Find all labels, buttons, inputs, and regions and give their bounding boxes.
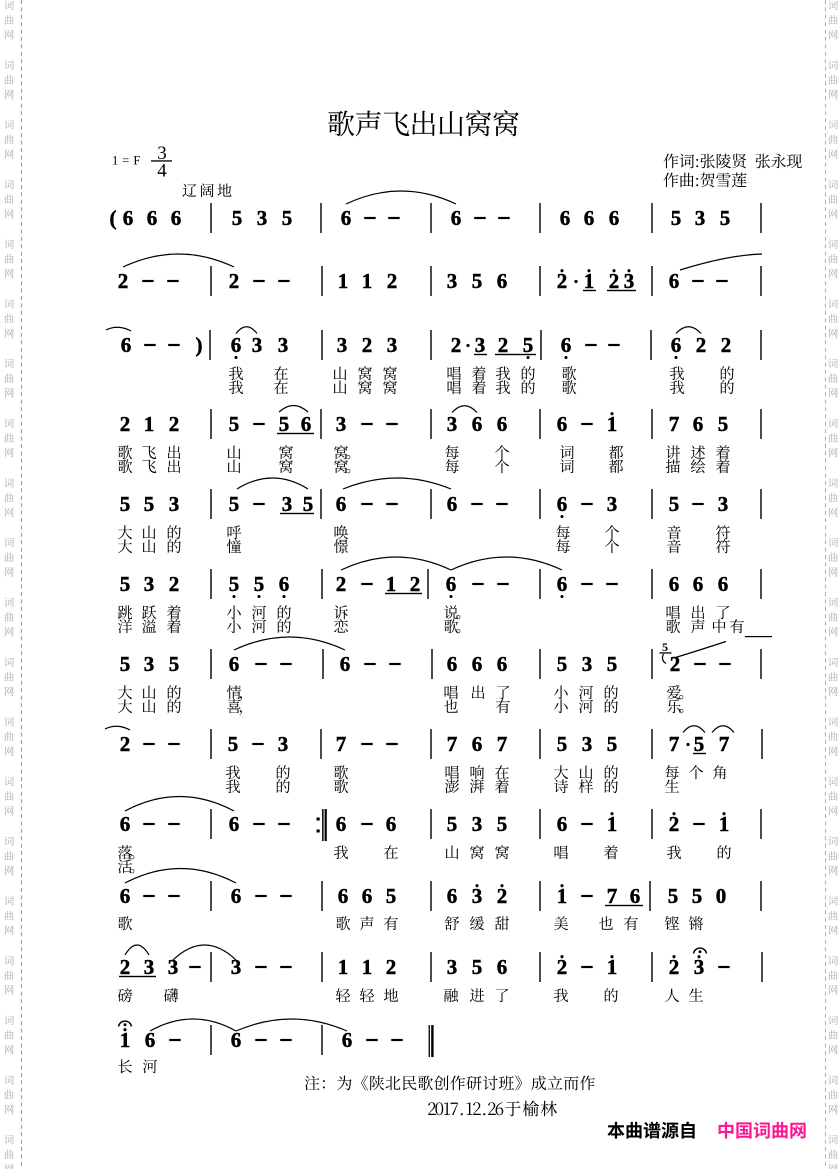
svg-text:6: 6: [557, 572, 568, 596]
svg-text:5: 5: [472, 955, 483, 979]
svg-text:7: 7: [669, 732, 680, 756]
svg-text:5: 5: [144, 492, 155, 516]
svg-text:7: 7: [497, 732, 508, 756]
svg-text:6: 6: [669, 269, 680, 293]
svg-text:6: 6: [340, 652, 351, 676]
svg-text:5: 5: [229, 412, 240, 436]
svg-text:6: 6: [451, 206, 462, 230]
svg-text:3: 3: [282, 492, 293, 516]
svg-text:6: 6: [231, 1028, 242, 1052]
svg-text:7: 7: [719, 732, 730, 756]
svg-text:(: (: [110, 206, 117, 230]
svg-text:2: 2: [669, 812, 680, 836]
svg-text:3: 3: [447, 269, 458, 293]
svg-text:6: 6: [342, 1028, 353, 1052]
svg-text:5: 5: [607, 652, 618, 676]
svg-text:3: 3: [472, 812, 483, 836]
svg-text:6: 6: [671, 333, 682, 357]
svg-text:3: 3: [257, 206, 268, 230]
svg-text:5: 5: [279, 412, 290, 436]
svg-text:1: 1: [362, 955, 373, 979]
svg-text:1: 1: [607, 412, 618, 436]
svg-text:6: 6: [693, 412, 704, 436]
svg-text:7: 7: [447, 732, 458, 756]
svg-text:6: 6: [231, 884, 242, 908]
svg-text:1: 1: [719, 812, 730, 836]
svg-text:2: 2: [721, 333, 732, 357]
svg-text:5: 5: [671, 206, 682, 230]
svg-text:2: 2: [696, 333, 707, 357]
svg-text:3: 3: [144, 955, 155, 979]
svg-text:5: 5: [229, 572, 240, 596]
svg-text:5: 5: [472, 269, 483, 293]
svg-text:6: 6: [120, 812, 131, 836]
svg-text:3: 3: [278, 333, 289, 357]
svg-text:3: 3: [718, 492, 729, 516]
svg-text:6: 6: [497, 955, 508, 979]
svg-text:2: 2: [498, 333, 509, 357]
svg-text:3: 3: [447, 955, 458, 979]
svg-text:5: 5: [303, 492, 314, 516]
svg-text:2: 2: [670, 652, 681, 676]
svg-text:1=F: 1=F: [112, 154, 140, 168]
svg-text:5: 5: [662, 640, 668, 654]
svg-text:2: 2: [497, 884, 508, 908]
svg-text:3: 3: [624, 269, 635, 293]
svg-text:2: 2: [169, 572, 180, 596]
svg-text:6: 6: [584, 206, 595, 230]
svg-text:3: 3: [695, 206, 706, 230]
svg-text:5: 5: [229, 492, 240, 516]
svg-text:3: 3: [475, 333, 486, 357]
svg-text:): ): [196, 333, 203, 357]
svg-text:5: 5: [232, 206, 243, 230]
svg-text:5: 5: [668, 884, 679, 908]
svg-text:2: 2: [120, 412, 131, 436]
svg-text:6: 6: [560, 206, 571, 230]
svg-text:2: 2: [669, 955, 680, 979]
svg-text:6: 6: [693, 572, 704, 596]
svg-text:2: 2: [118, 269, 129, 293]
svg-text:5: 5: [120, 572, 131, 596]
svg-text:6: 6: [557, 412, 568, 436]
svg-text:5: 5: [692, 884, 703, 908]
svg-text:7: 7: [607, 884, 618, 908]
svg-text:6: 6: [561, 333, 572, 357]
svg-text:6: 6: [231, 333, 242, 357]
svg-text:2: 2: [362, 333, 373, 357]
svg-text:5: 5: [120, 492, 131, 516]
svg-text:5: 5: [669, 492, 680, 516]
svg-text:6: 6: [669, 572, 680, 596]
svg-text:2: 2: [336, 572, 347, 596]
svg-text:6: 6: [121, 333, 132, 357]
svg-text:1: 1: [338, 269, 349, 293]
svg-text:6: 6: [497, 652, 508, 676]
svg-text:2: 2: [451, 333, 462, 357]
svg-text:6: 6: [120, 884, 131, 908]
svg-text:3: 3: [607, 492, 618, 516]
svg-text:3: 3: [337, 333, 348, 357]
svg-text:6: 6: [718, 572, 729, 596]
svg-text:6: 6: [229, 812, 240, 836]
svg-text:6: 6: [472, 412, 483, 436]
svg-text:6: 6: [497, 269, 508, 293]
svg-text:1: 1: [607, 812, 618, 836]
svg-text:6: 6: [362, 884, 373, 908]
svg-text:5: 5: [228, 732, 239, 756]
svg-text:3: 3: [472, 884, 483, 908]
svg-text:5: 5: [254, 572, 265, 596]
svg-text:2: 2: [229, 269, 240, 293]
svg-text:1: 1: [386, 572, 397, 596]
svg-text:5: 5: [523, 333, 534, 357]
svg-text:2: 2: [120, 732, 131, 756]
svg-text:6: 6: [472, 732, 483, 756]
svg-text:2: 2: [410, 572, 421, 596]
svg-text:3: 3: [278, 732, 289, 756]
svg-text:1: 1: [584, 269, 595, 293]
svg-text:1: 1: [144, 412, 155, 436]
svg-text:6: 6: [386, 812, 397, 836]
svg-text:6: 6: [336, 492, 347, 516]
svg-text:3: 3: [336, 412, 347, 436]
svg-text:6: 6: [147, 206, 158, 230]
svg-text:3: 3: [582, 732, 593, 756]
svg-text:3: 3: [168, 955, 179, 979]
svg-text:6: 6: [229, 652, 240, 676]
svg-text:7: 7: [336, 732, 347, 756]
svg-text:3: 3: [387, 333, 398, 357]
svg-text:5: 5: [120, 652, 131, 676]
svg-text:5: 5: [694, 732, 705, 756]
svg-text:0: 0: [716, 884, 727, 908]
svg-text:6: 6: [447, 492, 458, 516]
svg-text:1: 1: [362, 269, 373, 293]
svg-text:5: 5: [557, 652, 568, 676]
svg-text:6: 6: [336, 812, 347, 836]
svg-text:6: 6: [338, 884, 349, 908]
svg-text:6: 6: [557, 492, 568, 516]
svg-text:6: 6: [171, 206, 182, 230]
svg-text:2: 2: [120, 955, 131, 979]
svg-text:3: 3: [252, 333, 263, 357]
svg-text:2: 2: [169, 412, 180, 436]
svg-text:6: 6: [301, 412, 312, 436]
svg-text:5: 5: [607, 732, 618, 756]
svg-text:5: 5: [718, 412, 729, 436]
svg-text:1: 1: [120, 1028, 131, 1052]
svg-text:1: 1: [557, 884, 568, 908]
svg-text:2: 2: [387, 269, 398, 293]
svg-text:6: 6: [497, 412, 508, 436]
svg-text:6: 6: [630, 884, 641, 908]
svg-text:3: 3: [169, 492, 180, 516]
svg-text:5: 5: [497, 812, 508, 836]
svg-text:6: 6: [341, 206, 352, 230]
svg-text:1: 1: [607, 955, 618, 979]
svg-text:5: 5: [386, 884, 397, 908]
svg-text:7: 7: [669, 412, 680, 436]
svg-text:6: 6: [609, 206, 620, 230]
svg-text:3: 3: [582, 652, 593, 676]
svg-text:2: 2: [609, 269, 620, 293]
svg-text:6: 6: [472, 652, 483, 676]
svg-text:3: 3: [144, 652, 155, 676]
svg-text:3: 3: [144, 572, 155, 596]
svg-text:2: 2: [557, 269, 568, 293]
svg-text:2: 2: [557, 955, 568, 979]
svg-text:3: 3: [694, 955, 705, 979]
svg-text:5: 5: [720, 206, 731, 230]
svg-text:3: 3: [231, 955, 242, 979]
svg-text:5: 5: [282, 206, 293, 230]
svg-text:6: 6: [557, 812, 568, 836]
svg-text:6: 6: [279, 572, 290, 596]
svg-text:5: 5: [447, 812, 458, 836]
svg-text:5: 5: [557, 732, 568, 756]
svg-text:3: 3: [447, 412, 458, 436]
svg-text:6: 6: [447, 884, 458, 908]
svg-text:6: 6: [123, 206, 134, 230]
svg-text:5: 5: [169, 652, 180, 676]
svg-text:1: 1: [338, 955, 349, 979]
svg-text:6: 6: [145, 1028, 156, 1052]
svg-text:6: 6: [447, 652, 458, 676]
svg-text:4: 4: [157, 161, 167, 182]
svg-text:2: 2: [386, 955, 397, 979]
svg-text:6: 6: [446, 572, 457, 596]
